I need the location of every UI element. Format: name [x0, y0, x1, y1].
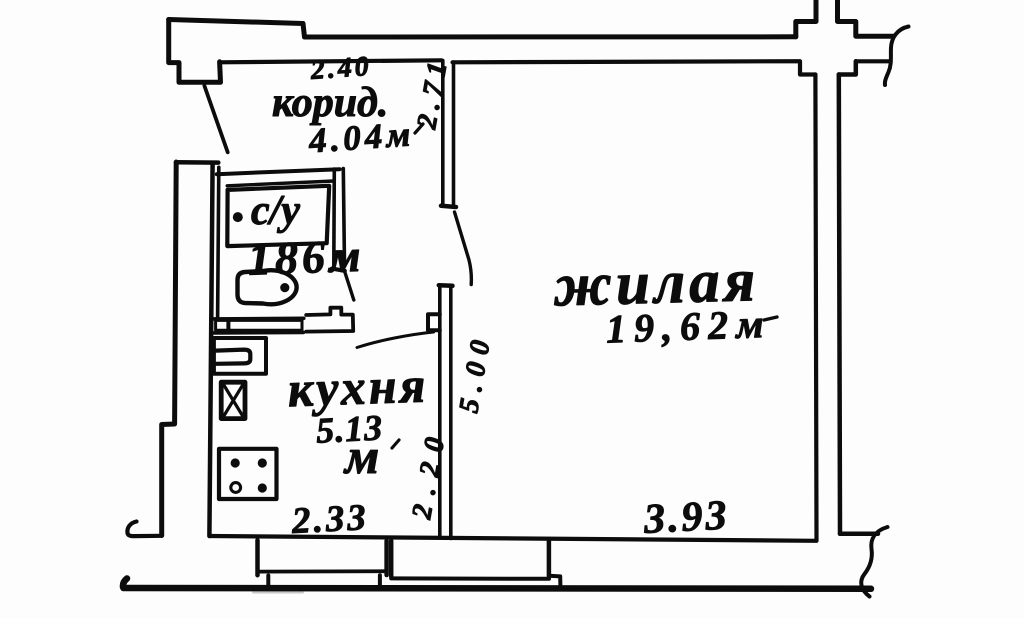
svg-text:2.33: 2.33 — [290, 497, 370, 542]
svg-text:м: м — [343, 428, 379, 484]
svg-text:5.00: 5.00 — [453, 330, 498, 415]
svg-text:2.71: 2.71 — [411, 54, 454, 132]
svg-text:2.20: 2.20 — [406, 424, 453, 522]
svg-text:186м: 186м — [247, 230, 365, 285]
svg-text:с/у: с/у — [251, 188, 300, 234]
svg-text:4.04м: 4.04м — [307, 114, 416, 160]
svg-text:19,62м: 19,62м — [605, 301, 772, 352]
svg-text:3.93: 3.93 — [642, 492, 731, 542]
